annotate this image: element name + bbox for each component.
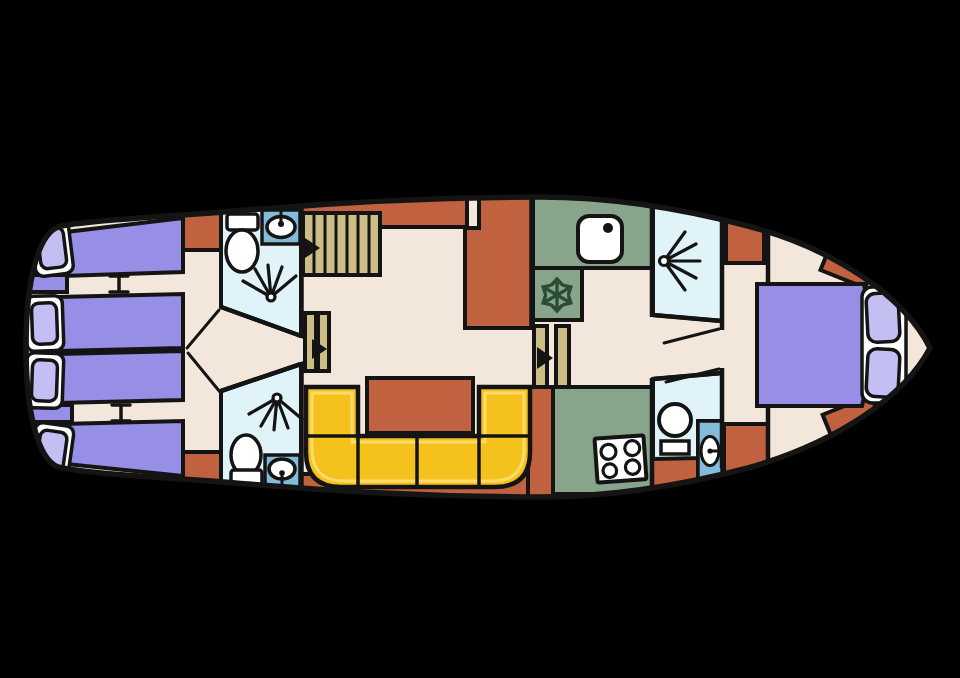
faucet-dot [278, 221, 284, 227]
faucet-dot [603, 223, 613, 233]
boat-floorplan [0, 0, 960, 678]
burner-icon [600, 444, 616, 460]
toilet-base [661, 441, 689, 454]
galley-sink-icon [578, 216, 622, 262]
burner-icon [624, 440, 640, 456]
burner-icon [603, 463, 618, 478]
aft-berth-2 [57, 294, 183, 351]
shower-head [660, 257, 669, 266]
bow-double-berth [757, 284, 870, 406]
pillow-2 [31, 303, 57, 345]
toilet-icon [659, 404, 691, 436]
shower-head [273, 394, 281, 402]
floorplan-stage [0, 0, 960, 678]
aft-berth-3 [57, 351, 183, 403]
saloon-aft-door-step [318, 313, 329, 371]
toilet-tank [227, 214, 258, 230]
stove-group [595, 435, 647, 482]
galley-door-step [556, 326, 569, 387]
pillow-3 [31, 360, 57, 402]
burner-icon [625, 459, 640, 474]
dinette-table [367, 378, 473, 433]
toilet-icon [226, 230, 258, 272]
shower-head [267, 293, 275, 301]
